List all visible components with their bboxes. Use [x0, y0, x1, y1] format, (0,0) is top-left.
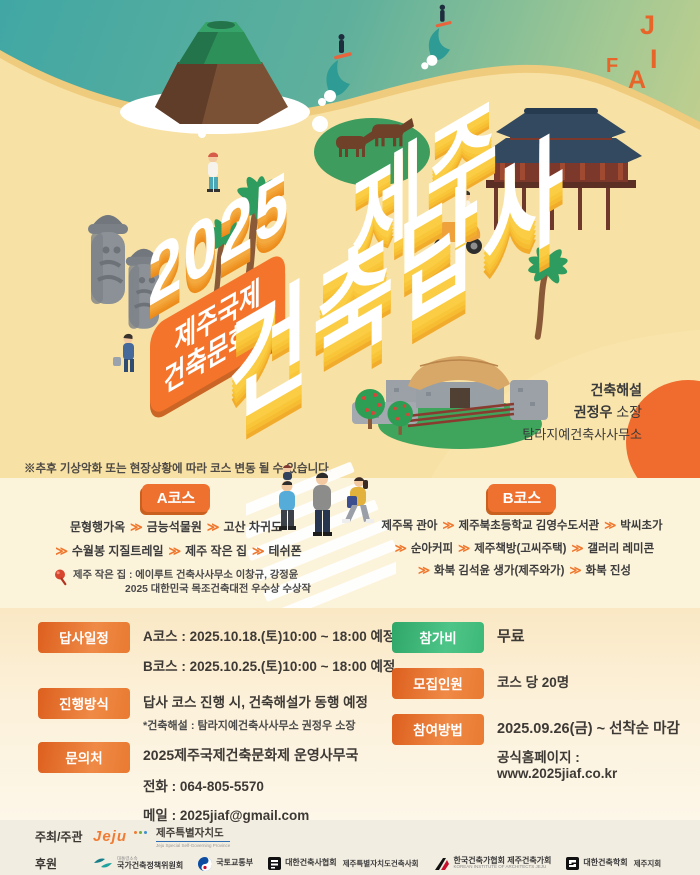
policy-commission-icon: [93, 857, 113, 869]
course-stop: 제주북초등학교 김영수도서관: [459, 520, 600, 532]
capacity-block: 모집인원 코스 당 20명: [392, 668, 569, 701]
apply-deadline: 2025.09.26(금) ~ 선착순 마감: [497, 717, 700, 738]
contact-office: 2025제주국제건축문화제 운영사무국: [143, 745, 358, 765]
chevron-icon: ≫: [252, 544, 264, 558]
sponsor-name: 국토교통부: [216, 859, 253, 867]
guide-name: 권정우 소장: [522, 402, 642, 422]
guide-office: 탐라지예건축사사무소: [522, 424, 642, 443]
capacity-badge: 모집인원: [392, 668, 484, 699]
course-a-row-2: ≫수월봉 지질트레일≫제주 작은 집≫테쉬폰: [18, 543, 334, 560]
course-stop: 화북 김석윤 생가(제주와가): [434, 565, 564, 577]
pushpin-icon: [54, 569, 68, 586]
schedule-line-b: B코스 : 2025.10.25.(토)10:00 ~ 18:00 예정: [143, 655, 395, 675]
jiaf-logo-letter-j: J: [640, 12, 655, 39]
sponsor-name: 대한건축학회: [583, 859, 627, 867]
fee-badge: 참가비: [392, 622, 484, 653]
course-stop: 순아커피: [411, 543, 453, 555]
fee-value: 무료: [497, 625, 525, 646]
course-stop: 고산 차귀도: [223, 520, 282, 534]
jiaf-logo-letter-f: F: [606, 56, 618, 76]
schedule-block: 답사일정 A코스 : 2025.10.18.(토)10:00 ~ 18:00 예…: [38, 622, 395, 685]
method-line: 답사 코스 진행 시, 건축해설가 동행 예정: [143, 691, 368, 711]
jeju-script-logo: Jeju: [93, 828, 127, 845]
chevron-icon: ≫: [442, 520, 453, 532]
apply-website: 공식홈페이지 : www.2025jiaf.co.kr: [497, 746, 700, 781]
method-note: *건축해설 : 탐라지예건축사사무소 권정우 소장: [143, 717, 368, 733]
contact-phone: 전화 : 064-805-5570: [143, 775, 358, 795]
chevron-icon: ≫: [418, 565, 429, 577]
chevron-icon: ≫: [130, 520, 142, 534]
sponsor-kia-jeju: 한국건축가협회 제주건축가회 KOREAN INSTITUTE OF ARCHI…: [434, 857, 552, 871]
course-stop: 박씨초가: [620, 520, 662, 532]
aik-icon: [566, 857, 579, 870]
footer: 주최/주관 Jeju 제주특별자치도 Jeju Special Self-Gov…: [0, 820, 700, 875]
course-a: A코스 문형행가옥≫금능석물원≫고산 차귀도 ≫수월봉 지질트레일≫제주 작은 …: [18, 484, 334, 597]
chevron-icon: ≫: [458, 543, 469, 555]
course-stop: 테쉬폰: [269, 544, 302, 558]
sponsor-kira-jeju: 대한건축사협회 제주특별자치도건축사회: [268, 857, 418, 870]
course-b-badge: B코스: [488, 484, 556, 512]
contact-badge: 문의처: [38, 742, 130, 773]
apply-badge: 참여방법: [392, 714, 484, 745]
sponsor-sub: KOREAN INSTITUTE OF ARCHITECTS JEJU: [454, 865, 552, 870]
fee-block: 참가비 무료: [392, 622, 525, 656]
sponsor-branch: 제주특별자치도건축사회: [343, 858, 419, 869]
course-a-note-line1: 제주 작은 집 : 에이루트 건축사사무소 이창규, 강정윤: [73, 569, 311, 583]
sponsor-name: 국가건축정책위원회: [117, 862, 183, 870]
course-stop: 금능석물원: [147, 520, 202, 534]
course-a-note-line2: 2025 대한민국 목조건축대전 우수상 수상작: [73, 583, 311, 597]
chevron-icon: ≫: [207, 520, 219, 534]
jeju-logo-dots: [134, 828, 149, 846]
course-b: B코스 제주목 관아≫제주북초등학교 김영수도서관≫박씨초가 ≫순아커피≫제주책…: [352, 484, 692, 580]
capacity-value: 코스 당 20명: [497, 671, 569, 691]
course-stop: 수월봉 지질트레일: [72, 544, 164, 558]
method-block: 진행방식 답사 코스 진행 시, 건축해설가 동행 예정 *건축해설 : 탐라지…: [38, 688, 368, 733]
jiaf-logo-letter-a: A: [628, 68, 646, 93]
course-b-row-2: ≫순아커피≫제주책방(고씨주택)≫갤러리 레미콘: [352, 541, 692, 558]
method-badge: 진행방식: [38, 688, 130, 719]
sponsor-aik-jeju: 대한건축학회 제주지회: [566, 857, 661, 870]
host-row: 주최/주관 Jeju 제주특별자치도 Jeju Special Self-Gov…: [35, 825, 700, 848]
schedule-line-a: A코스 : 2025.10.18.(토)10:00 ~ 18:00 예정: [143, 625, 395, 645]
course-stop: 제주 작은 집: [185, 544, 247, 558]
chevron-icon: ≫: [55, 544, 67, 558]
host-name: 제주특별자치도: [156, 825, 230, 840]
sponsor-branch: 제주지회: [634, 858, 662, 869]
course-b-row-1: 제주목 관아≫제주북초등학교 김영수도서관≫박씨초가: [352, 518, 692, 535]
molit-icon: [198, 857, 212, 871]
guide-role: 건축해설: [522, 380, 642, 400]
chevron-icon: ≫: [604, 520, 615, 532]
host-label: 주최/주관: [35, 828, 93, 845]
sponsor-molit: 국토교통부: [198, 857, 253, 871]
apply-block: 참여방법 2025.09.26(금) ~ 선착순 마감 공식홈페이지 : www…: [392, 714, 700, 790]
jeju-province-logo: Jeju 제주특별자치도 Jeju Special Self-Governing…: [93, 825, 230, 848]
course-a-badge: A코스: [142, 484, 210, 512]
sponsor-architecture-policy-commission: 대통령소속 국가건축정책위원회: [93, 857, 183, 870]
sponsor-row: 후원 대통령소속 국가건축정책위원회: [35, 852, 700, 875]
guide-credit: 건축해설 권정우 소장 탐라지예건축사사무소: [522, 380, 642, 443]
chevron-icon: ≫: [395, 543, 406, 555]
chevron-icon: ≫: [572, 543, 583, 555]
schedule-badge: 답사일정: [38, 622, 130, 653]
course-stop: 화북 진성: [586, 565, 632, 577]
poster: J I F A 2025 제주국제 건축문화제 제주 건축답사 건축해설 권정우…: [0, 0, 700, 875]
course-a-note: 제주 작은 집 : 에이루트 건축사사무소 이창규, 강정윤 2025 대한민국…: [54, 569, 334, 597]
sponsor-name: 대한건축사협회: [285, 859, 337, 867]
kira-icon: [268, 857, 281, 870]
host-name-english: Jeju Special Self-Governing Province: [156, 841, 230, 848]
sponsor-label: 후원: [35, 855, 93, 872]
course-stop: 제주책방(고씨주택): [474, 543, 566, 555]
chevron-icon: ≫: [169, 544, 181, 558]
course-b-row-3: ≫화북 김석윤 생가(제주와가)≫화북 진성: [352, 563, 692, 580]
jiaf-logo-letter-i: I: [650, 46, 658, 73]
course-stop: 제주목 관아: [381, 520, 437, 532]
chevron-icon: ≫: [569, 565, 580, 577]
kia-icon: [434, 857, 450, 871]
course-stop: 갤러리 레미콘: [588, 543, 655, 555]
course-stop: 문형행가옥: [70, 520, 125, 534]
course-a-row-1: 문형행가옥≫금능석물원≫고산 차귀도: [18, 519, 334, 536]
